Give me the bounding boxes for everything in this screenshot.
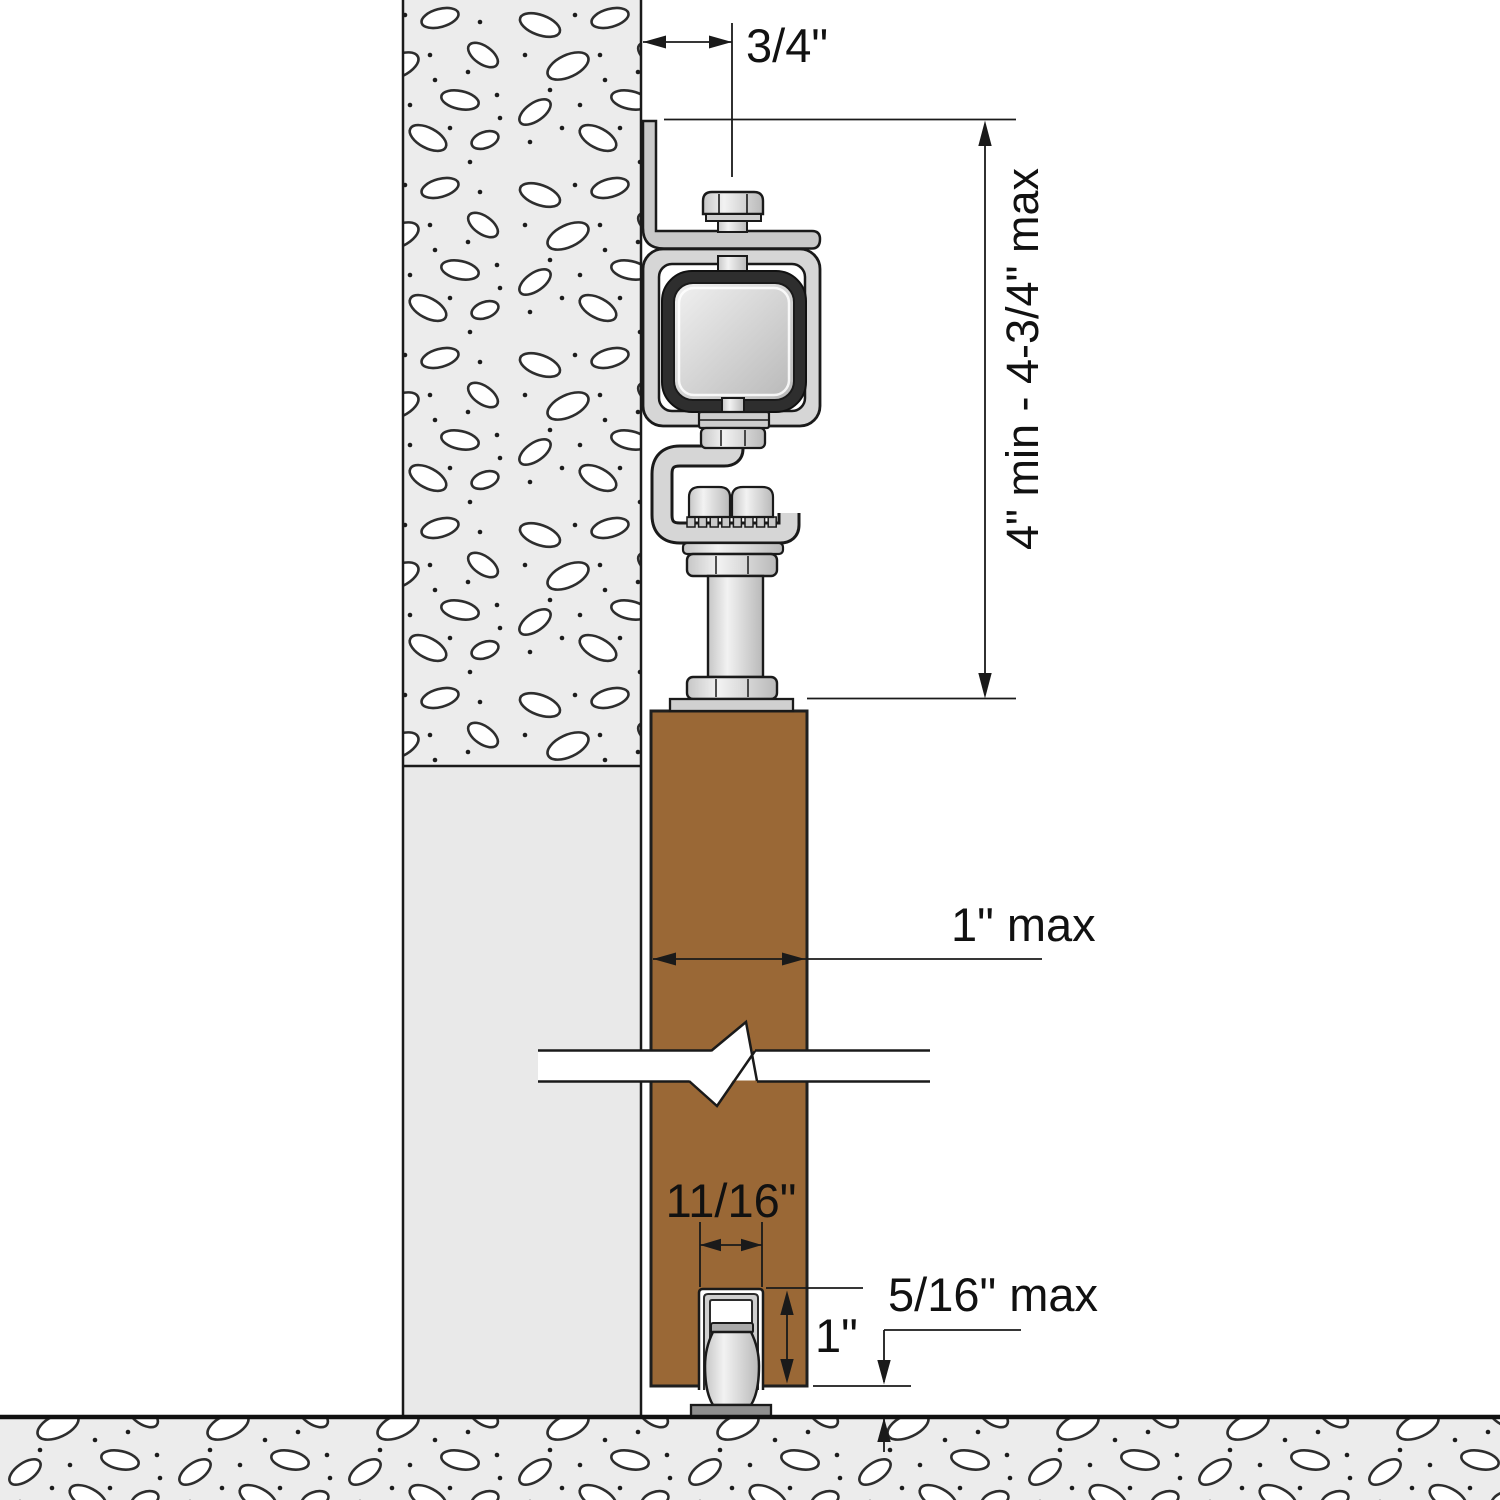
lower-hex-nut [687,677,777,699]
dim-door-thickness-label: 1" max [951,898,1096,951]
technical-drawing: 3/4" 4" min - 4-3/4" max 1" max 11/16" [0,0,1500,1500]
dim-floor-clearance-label: 5/16" max [888,1268,1098,1321]
dim-mount-height-label: 4" min - 4-3/4" max [997,167,1048,550]
wall-stucco-section [402,0,642,766]
track-bolt-shank [718,221,747,232]
drawing-canvas: 3/4" 4" min - 4-3/4" max 1" max 11/16" [0,0,1500,1500]
break-band [538,1052,930,1081]
washer-disc [683,543,783,554]
wall-plain-section [402,766,642,1417]
track-bolt-flange [706,214,761,221]
floor-concrete [0,1417,1500,1500]
dim-groove-depth-label: 1" [815,1309,858,1362]
axle-nut [701,428,765,448]
wall [402,0,642,1417]
track-bolt-head [703,192,763,214]
strap-bolt-head-left [689,487,730,517]
door-top-plate [670,699,793,711]
dim-track-offset-label: 3/4" [746,19,828,72]
floor [0,1417,1500,1500]
wheel-hub [674,283,794,400]
strap-bolt-head-right [732,487,773,517]
dim-groove-width-label: 11/16" [666,1174,797,1227]
upper-hex-nut [687,554,777,576]
hanger-bolt-shaft [708,576,763,677]
guide-roller [705,1332,759,1405]
